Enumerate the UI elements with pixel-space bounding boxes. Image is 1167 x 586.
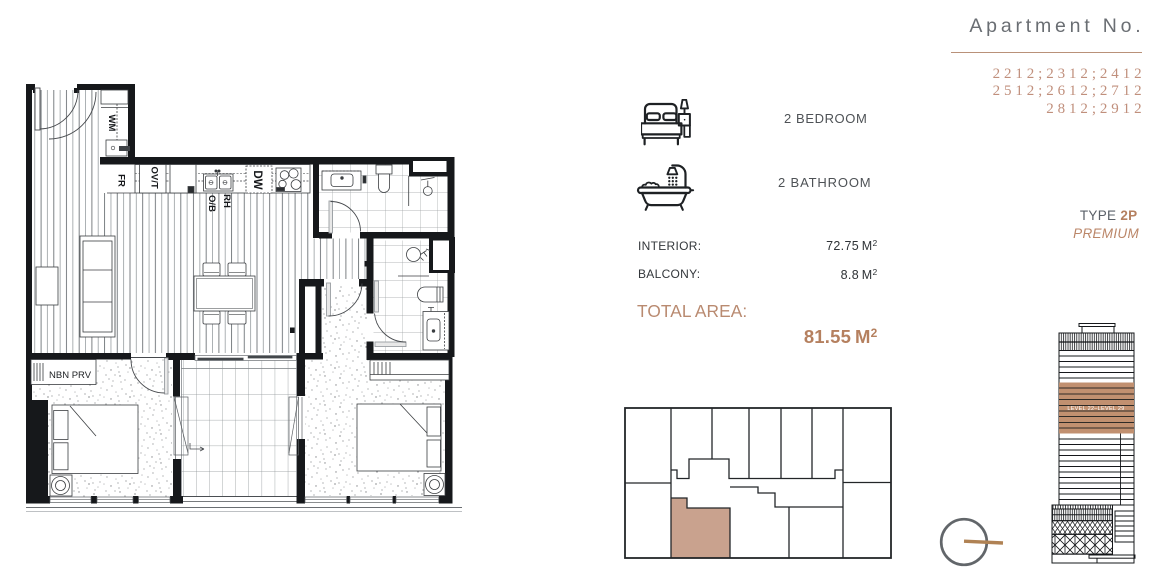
svg-text:NBN PRV: NBN PRV: [49, 370, 92, 381]
svg-text:RH: RH: [221, 194, 232, 208]
svg-text:DW: DW: [251, 170, 263, 189]
svg-text:OV/T: OV/T: [149, 167, 160, 189]
svg-text:LEVEL 22–LEVEL 29: LEVEL 22–LEVEL 29: [1067, 406, 1124, 412]
svg-text:O/B: O/B: [206, 195, 217, 212]
svg-text:FR: FR: [115, 174, 126, 187]
svg-text:WM: WM: [106, 115, 117, 132]
